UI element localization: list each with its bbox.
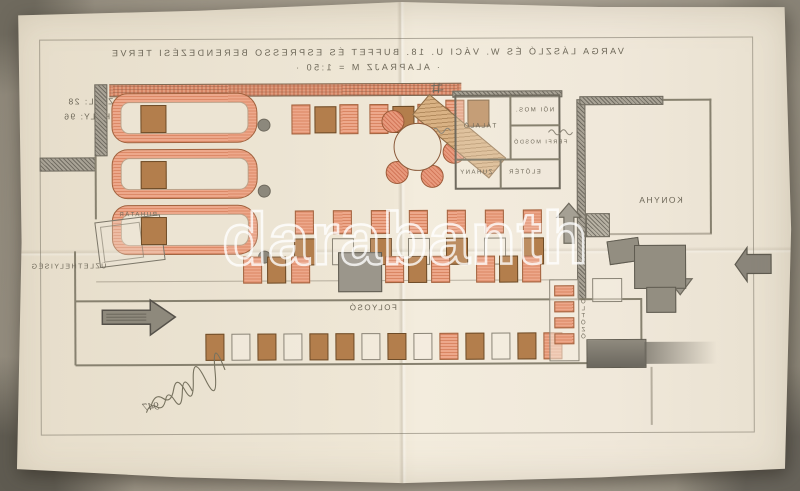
- counter-block: [554, 317, 574, 328]
- plan-title-line1: VARGA LÁSZLÓ ÉS W. VÁCI U. 18. BUFFET ÉS…: [94, 46, 639, 58]
- booth-banquette: [111, 93, 257, 144]
- drawing-sheet: VARGA LÁSZLÓ ÉS W. VÁCI U. 18. BUFFET ÉS…: [0, 0, 800, 491]
- corridor-right-wall: [640, 298, 642, 342]
- room-label-konyha: KONYHA: [638, 195, 683, 205]
- room-label-noi-mosdo: NŐI MOS.: [514, 107, 554, 113]
- table: [314, 106, 336, 133]
- round-table: [393, 123, 441, 171]
- shaded-wall-corner: [586, 339, 646, 368]
- room-label-folyoso: FOLYOSÓ: [348, 303, 397, 312]
- break-mark: [547, 127, 573, 137]
- counter-block: [554, 333, 574, 344]
- table: [231, 334, 250, 361]
- room-label-eloter: ELŐTÉR: [508, 169, 541, 175]
- booth-banquette: [112, 149, 258, 200]
- column-dot: [257, 119, 270, 132]
- booth-table: [141, 217, 167, 245]
- table: [517, 332, 536, 359]
- room-label-uzlethelyiseg: ÜZLETHELYISÉG: [30, 263, 106, 270]
- watermark-text: darabanth: [222, 195, 592, 282]
- table: [335, 333, 354, 360]
- table: [491, 333, 510, 360]
- room-label-ferfi-mosdo: FÉRFI MOSDÓ: [513, 139, 568, 145]
- counter-block: [554, 301, 574, 312]
- room-partition: [500, 160, 502, 189]
- left-arrow-icon: [733, 246, 773, 282]
- booth-table: [140, 105, 166, 133]
- table: [387, 333, 406, 360]
- table: [413, 333, 432, 360]
- room-label-oltozo: ÖLTÖZŐ: [580, 299, 586, 341]
- shaded-wall-fade: [644, 342, 716, 364]
- room-partition: [510, 124, 559, 126]
- paper-shadow: VARGA LÁSZLÓ ÉS W. VÁCI U. 18. BUFFET ÉS…: [0, 0, 800, 491]
- pencil-guide-line: [651, 367, 653, 425]
- table: [309, 333, 328, 360]
- table: [361, 333, 380, 360]
- table: [257, 334, 276, 361]
- left-wall-line: [95, 156, 97, 219]
- shaded-wall-piece: [634, 245, 686, 289]
- plan-title: VARGA LÁSZLÓ ÉS W. VÁCI U. 18. BUFFET ÉS…: [94, 46, 639, 73]
- kitchen-top-line: [663, 99, 711, 101]
- entrance-arrow-icon: [100, 297, 178, 339]
- hatch-symbol: [431, 82, 443, 94]
- chair: [439, 333, 458, 360]
- table: [283, 333, 302, 360]
- photograph-backdrop: VARGA LÁSZLÓ ÉS W. VÁCI U. 18. BUFFET ÉS…: [0, 0, 800, 491]
- entry-wall-hatched: [40, 157, 96, 171]
- counter-block: [554, 285, 574, 296]
- room-partition: [509, 96, 511, 160]
- room-label-zuhany: ZUHANY: [459, 170, 493, 176]
- room-label-talalo: TÁLALÓ: [462, 123, 496, 130]
- chair: [291, 104, 310, 134]
- booth-table: [141, 161, 167, 189]
- shaded-wall-piece: [646, 287, 676, 313]
- chair: [339, 104, 358, 134]
- left-wall-hatched: [94, 84, 107, 156]
- signature-year: 947: [142, 400, 160, 414]
- fixture-box: [592, 278, 622, 302]
- table: [465, 333, 484, 360]
- kitchen-top-wall: [579, 96, 663, 105]
